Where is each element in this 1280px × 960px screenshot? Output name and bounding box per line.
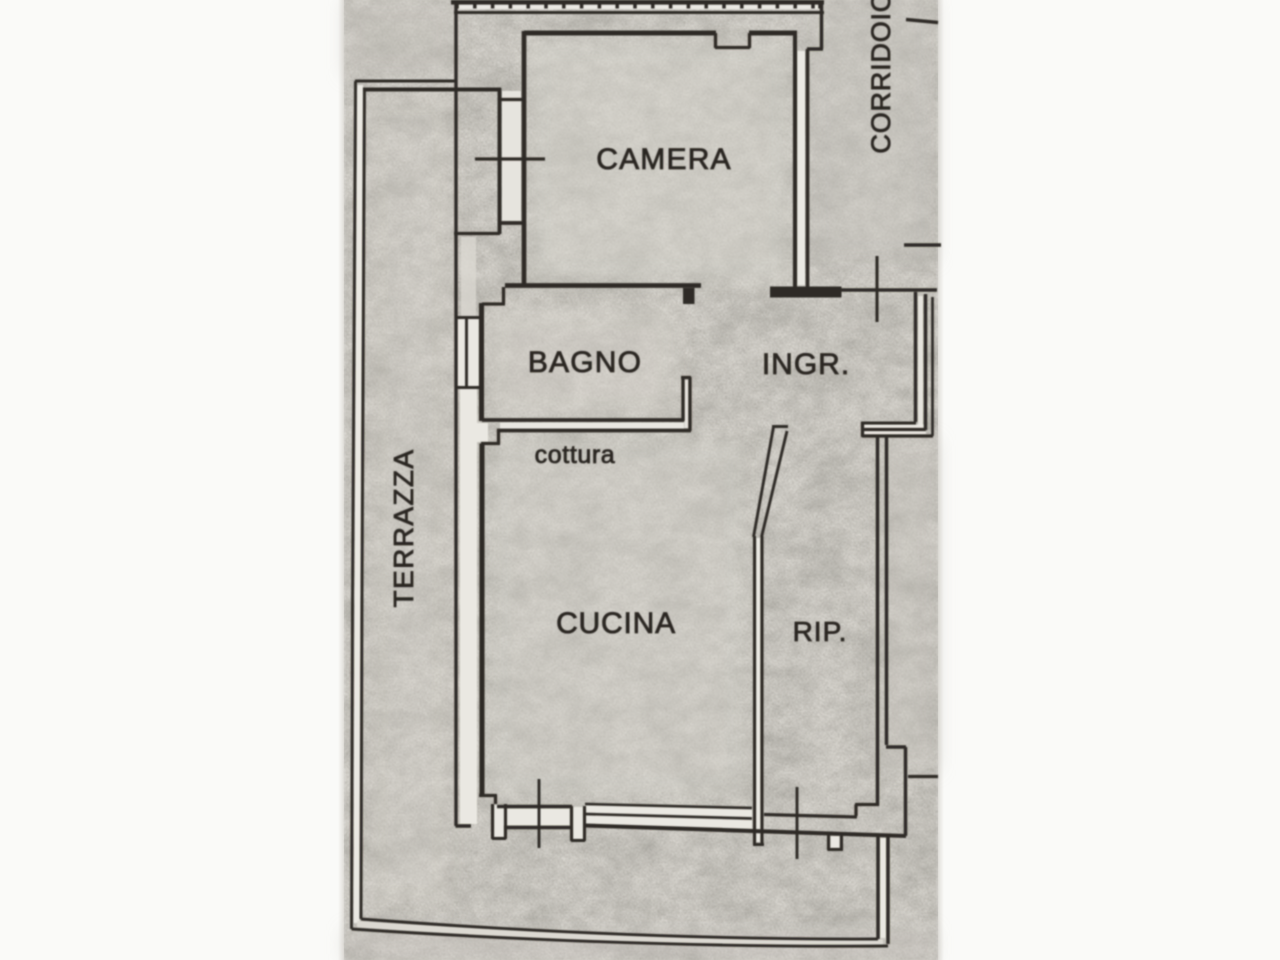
svg-text:CORRIDOIO: CORRIDOIO: [866, 0, 896, 154]
svg-text:RIP.: RIP.: [793, 616, 848, 647]
svg-text:TERRAZZA: TERRAZZA: [388, 449, 419, 608]
svg-text:INGR.: INGR.: [762, 348, 850, 381]
svg-text:CUCINA: CUCINA: [556, 607, 676, 640]
svg-text:cottura: cottura: [535, 441, 616, 469]
svg-text:BAGNO: BAGNO: [528, 346, 642, 379]
svg-text:CAMERA: CAMERA: [596, 143, 732, 176]
